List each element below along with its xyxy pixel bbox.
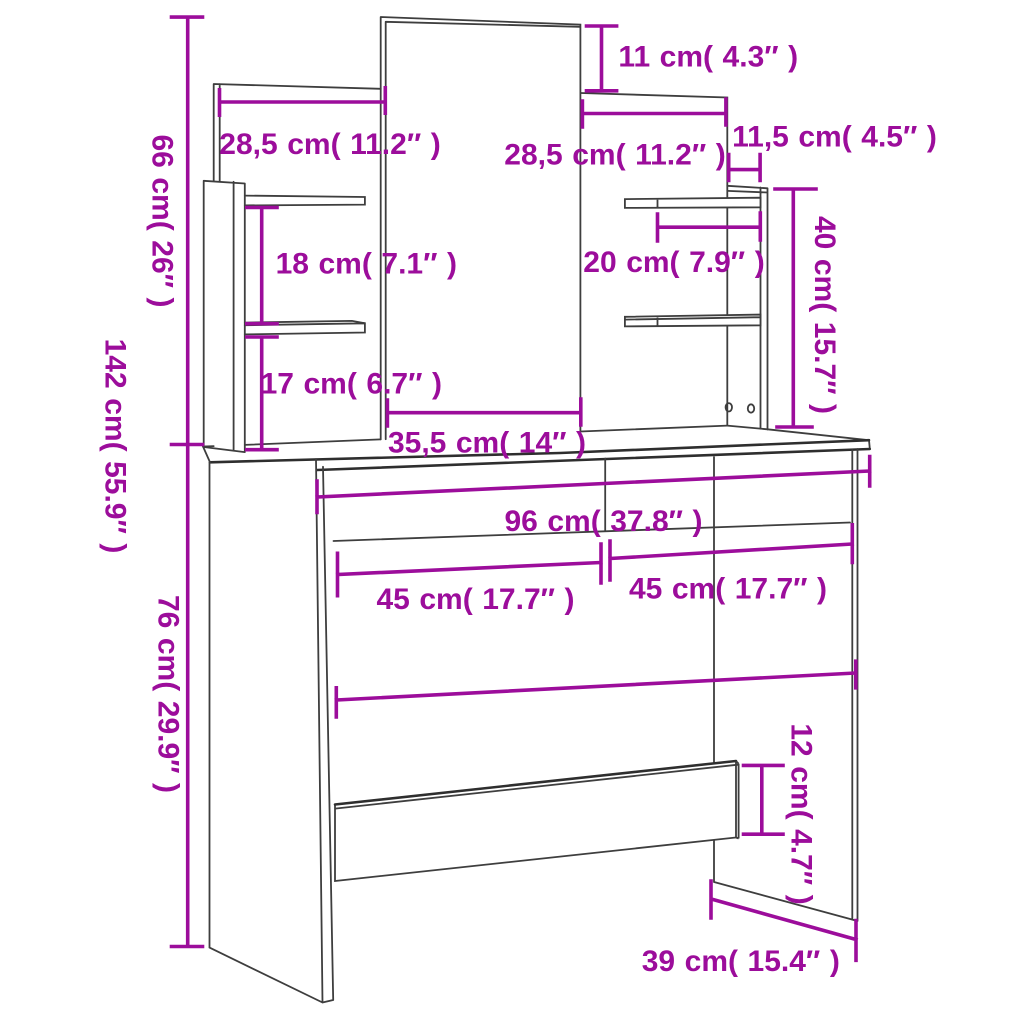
svg-text:39 cm( 15.4″ ): 39 cm( 15.4″ ) [642,945,840,978]
svg-text:76 cm( 29.9″ ): 76 cm( 29.9″ ) [151,595,184,793]
svg-text:12 cm( 4.7″ ): 12 cm( 4.7″ ) [785,723,818,904]
svg-text:17 cm( 6.7″ ): 17 cm( 6.7″ ) [261,368,442,401]
svg-text:45 cm( 17.7″ ): 45 cm( 17.7″ ) [376,583,574,616]
svg-text:66 cm( 26″ ): 66 cm( 26″ ) [146,134,179,307]
svg-text:11 cm( 4.3″ ): 11 cm( 4.3″ ) [618,41,798,74]
svg-text:28,5 cm( 11.2″ ): 28,5 cm( 11.2″ ) [504,139,725,172]
svg-text:11,5 cm( 4.5″ ): 11,5 cm( 4.5″ ) [732,121,937,154]
svg-text:96 cm( 37.8″ ): 96 cm( 37.8″ ) [504,505,702,538]
svg-text:35,5 cm( 14″ ): 35,5 cm( 14″ ) [388,427,586,460]
svg-text:28,5 cm( 11.2″ ): 28,5 cm( 11.2″ ) [219,128,440,161]
svg-text:45 cm( 17.7″ ): 45 cm( 17.7″ ) [629,573,827,606]
svg-text:20 cm( 7.9″ ): 20 cm( 7.9″ ) [583,246,764,279]
svg-text:142 cm( 55.9″ ): 142 cm( 55.9″ ) [98,339,131,554]
svg-text:40 cm( 15.7″ ): 40 cm( 15.7″ ) [808,216,841,414]
svg-text:18 cm( 7.1″ ): 18 cm( 7.1″ ) [276,248,457,281]
